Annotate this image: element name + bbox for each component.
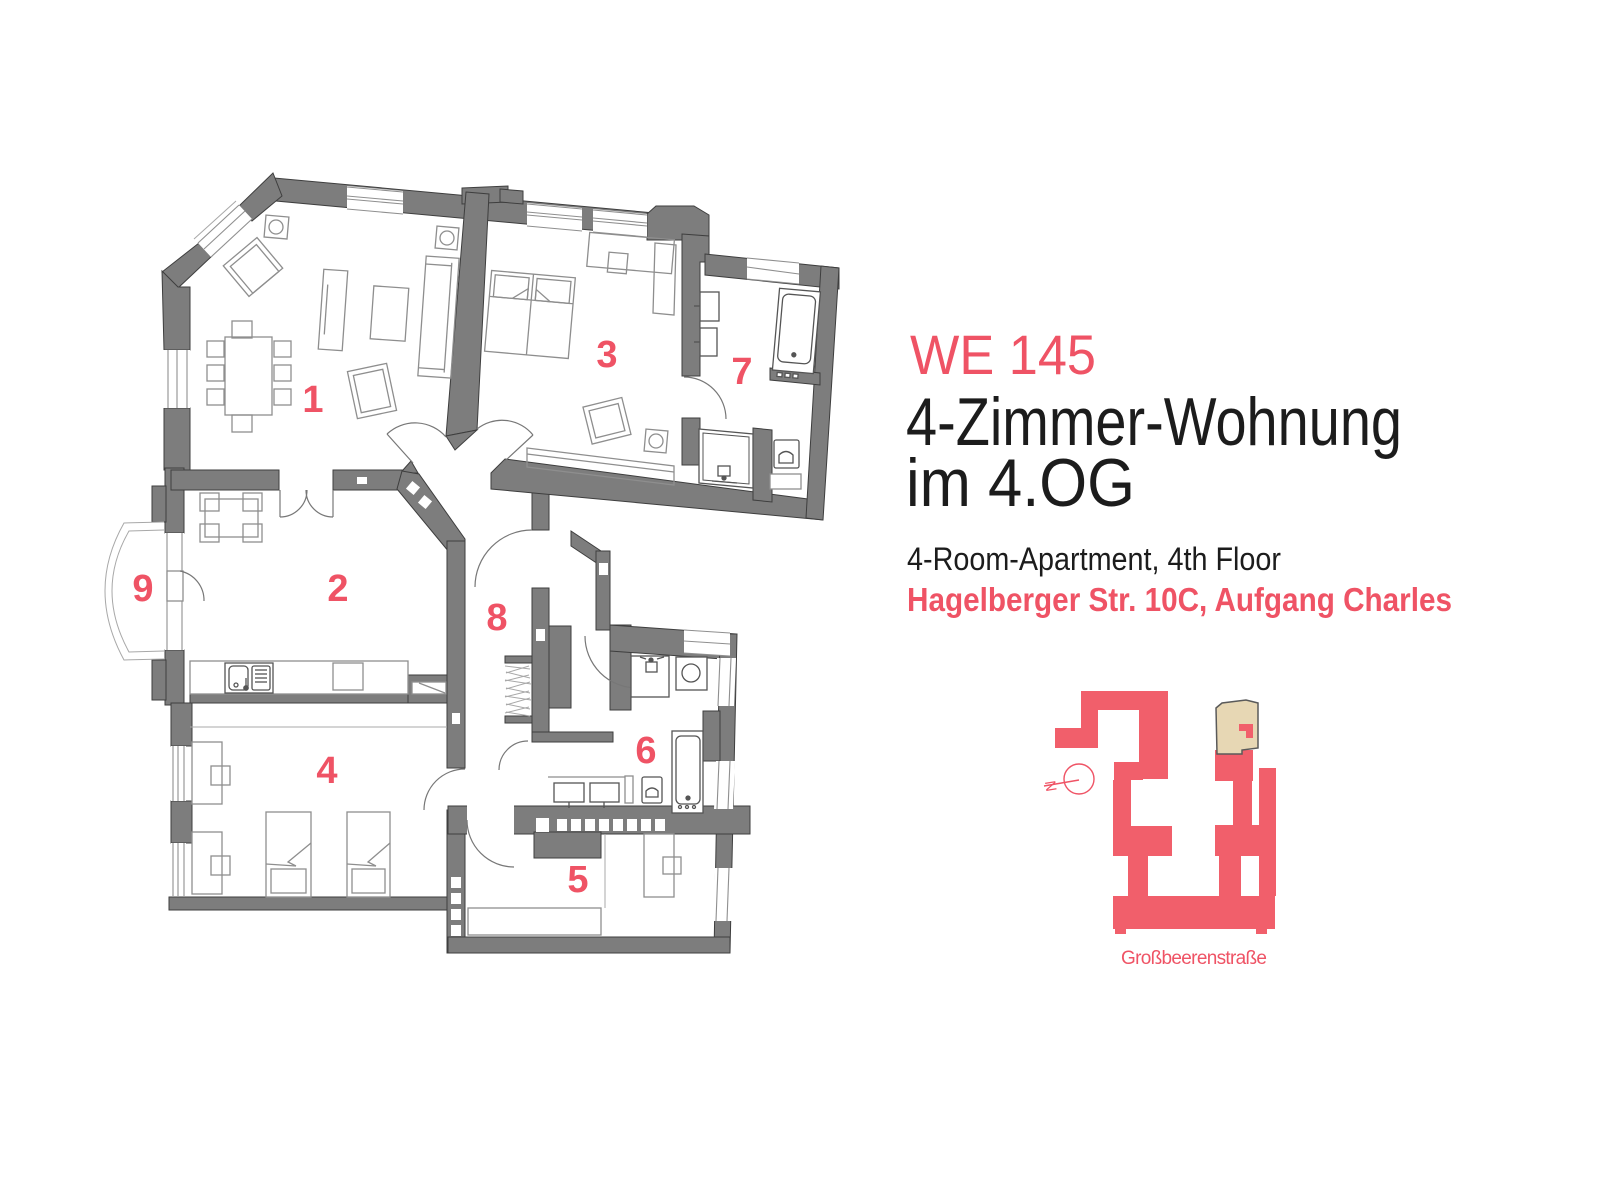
svg-text:im 4.OG: im 4.OG — [906, 445, 1135, 521]
svg-text:4: 4 — [316, 750, 337, 792]
svg-text:1: 1 — [302, 379, 323, 421]
svg-text:6: 6 — [635, 730, 656, 772]
svg-text:4-Room-Apartment, 4th Floor: 4-Room-Apartment, 4th Floor — [907, 541, 1281, 577]
svg-text:9: 9 — [132, 568, 153, 610]
svg-text:8: 8 — [486, 597, 507, 639]
svg-text:3: 3 — [596, 334, 617, 376]
svg-text:5: 5 — [567, 859, 588, 901]
svg-text:Großbeerenstraße: Großbeerenstraße — [1121, 948, 1267, 969]
svg-text:Hagelberger Str. 10C, Aufgang: Hagelberger Str. 10C, Aufgang Charles — [907, 581, 1452, 618]
svg-text:7: 7 — [731, 351, 752, 393]
svg-text:2: 2 — [327, 568, 348, 610]
svg-text:WE 145: WE 145 — [910, 323, 1096, 386]
